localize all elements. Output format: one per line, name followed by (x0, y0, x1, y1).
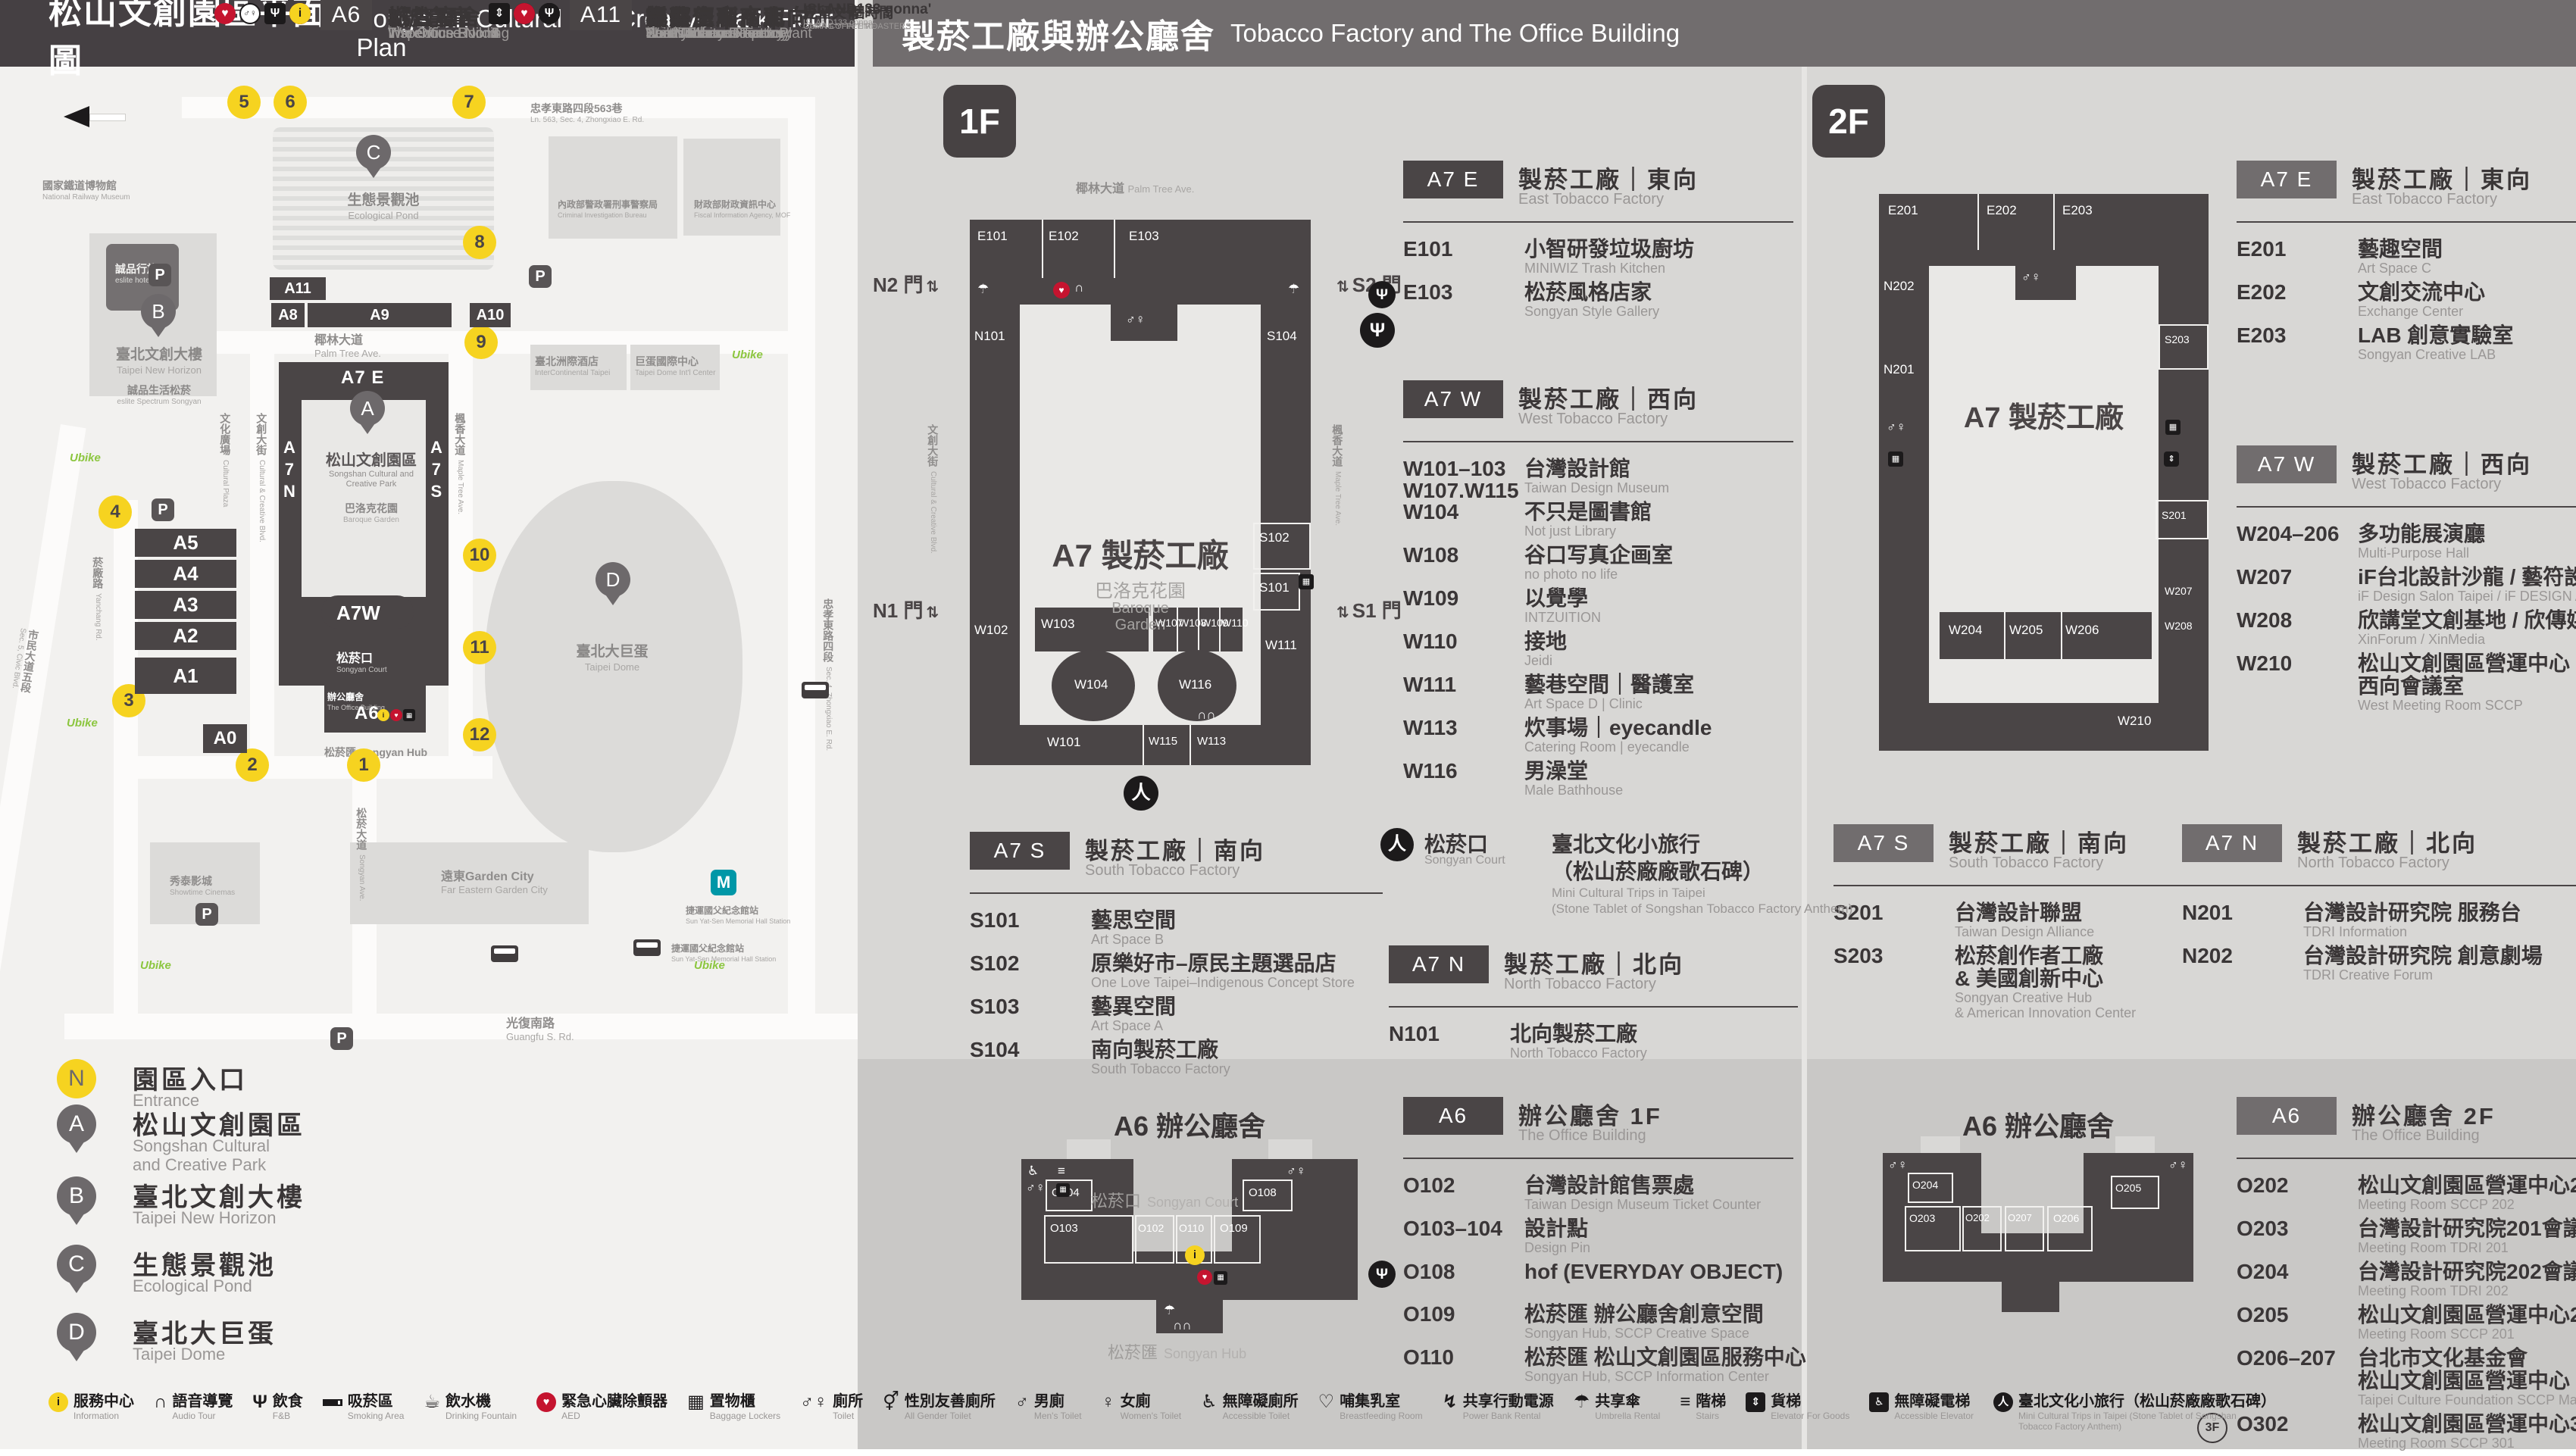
listing-row: N201台灣設計研究院 服務台TDRI Information (2182, 901, 2576, 939)
women-icon: ♀ (1102, 1392, 1115, 1412)
plan-icon: ▦ (1214, 1270, 1227, 1285)
aed-icon: ♥ (1053, 282, 1070, 298)
info-icon: i (1185, 1245, 1205, 1265)
locker-icon: ▦ (1056, 1183, 1070, 1197)
facility-text: 階梯Stairs (1696, 1392, 1726, 1421)
info-icon: i (48, 1392, 68, 1412)
section-title-zh: 製菸工廠｜西向 (1518, 380, 1699, 414)
map-label: 光復南路Guangfu S. Rd. (506, 1017, 574, 1043)
room-label-E103: E103 (1129, 229, 1159, 244)
smoking-icon (323, 1399, 342, 1406)
plan-glyph-icon: ♂♀ (1026, 1180, 1046, 1195)
room-label-W116: W116 (1179, 677, 1211, 692)
marker-icon-A: A (57, 1104, 96, 1144)
section-rows: N101北向製菸工廠North Tobacco Factory (1389, 1023, 1798, 1066)
fnb-icon: Ψ (1368, 1261, 1396, 1288)
room-name-zh: 松山文創園區營運中心西向會議室 (2358, 652, 2576, 698)
room-name-zh: 松菸創作者工廠& 美國創新中心 (1955, 945, 2212, 990)
entrance-number-marker: 1 (347, 748, 380, 782)
facility-access: ♿無障礙廁所Accessible Toilet (1201, 1392, 1299, 1421)
room-label-W115: W115 (1149, 735, 1177, 748)
listing-row: E202文創交流中心Exchange Center (2237, 281, 2576, 319)
room-name-zh: 台灣設計研究院201會議室 (2358, 1217, 2576, 1240)
right-title-zh: 製菸工廠與辦公廳舍 (902, 9, 1215, 58)
listing-row: S203松菸創作者工廠& 美國創新中心Songyan Creative Hub&… (1834, 945, 2212, 1020)
facility-text: 貨梯Elevator For Goods (1771, 1392, 1849, 1421)
p2-title: A7 製菸工廠 (1929, 394, 2159, 436)
room-name-en: Catering Room | eyecandle (1524, 739, 1793, 755)
entrance-number-marker: 9 (464, 326, 498, 359)
parking-icon: P (152, 498, 174, 521)
room-label-O202: O202 (1965, 1212, 1990, 1223)
facility-text: 無障礙電梯Accessible Elevator (1894, 1392, 1974, 1421)
marker-en: Taipei New Horizon (133, 1208, 277, 1227)
a6p1-court-label: 松菸口Songyan Court (1091, 1188, 1238, 1212)
facility-text: 性別友善廁所All Gender Toilet (905, 1392, 996, 1421)
room-label-W208: W208 (2165, 620, 2193, 632)
room-name-en: Multi-Purpose Hall (2358, 545, 2576, 561)
facility-text: 臺北文化小旅行（松山菸廠廠歌石碑）Mini Cultural Trips in … (2018, 1392, 2276, 1432)
listing-row: W111藝巷空間｜醫護室Art Space D | Clinic (1403, 673, 1793, 711)
room-name-en: Art Space C (2358, 261, 2576, 276)
listing-row: W110接地Jeidi (1403, 630, 1793, 668)
songyan-en: Songyan Court (1424, 854, 1505, 867)
room-name-zh: iF台北設計沙龍 / 藝符設計 (2358, 566, 2576, 589)
room-label-W103: W103 (1041, 617, 1074, 632)
info-icon: i (377, 709, 389, 721)
section-badge: A7 E (2237, 161, 2337, 198)
listing-row: W204–206多功能展演廳Multi-Purpose Hall (2237, 523, 2576, 561)
listing-row: W109以覺學INTZUITION (1403, 587, 1793, 625)
section-divider (1403, 1158, 1793, 1159)
p2-line (1977, 194, 1979, 250)
info-icon: i (289, 3, 311, 24)
room-label-W207: W207 (2165, 585, 2193, 597)
plan-icon: 人 (1124, 776, 1158, 811)
room-name-en: South Tobacco Factory (1091, 1061, 1383, 1076)
legend-badge: A6 (320, 0, 372, 30)
map-label: 松山文創園區Songshan Cultural andCreative Park (303, 451, 439, 489)
legend-marker-B: B臺北文創大樓Taipei New Horizon (57, 1176, 375, 1245)
section-title-zh: 製菸工廠｜南向 (1949, 824, 2129, 858)
room-name-zh: 接地 (1524, 630, 1793, 653)
drink-icon: ☕ (424, 1392, 440, 1412)
room-name-zh: 台灣設計研究院 創意劇場 (2303, 945, 2576, 967)
room-name-en: Art Space B (1091, 932, 1383, 947)
songyan-desc-zh2: （松山菸廠廠歌石碑） (1552, 855, 1764, 886)
listing-row: W210松山文創園區營運中心西向會議室West Meeting Room SCC… (2237, 652, 2576, 713)
room-name-zh: 松山文創園區營運中心301會議室 (2358, 1413, 2576, 1436)
building-bar-A9: A9 (308, 303, 452, 327)
room-code: W109 (1403, 587, 1524, 609)
map-label: A7W (336, 601, 380, 625)
section-divider (1389, 1006, 1798, 1008)
listing-row: S103藝異空間Art Space A (970, 995, 1383, 1033)
room-label-O203: O203 (1909, 1212, 1935, 1224)
section-divider (970, 892, 1383, 894)
room-name-en: iF Design Salon Taipei / iF DESIGN ASIA (2358, 589, 2576, 604)
section-title-en: South Tobacco Factory (1949, 855, 2103, 872)
room-name-en: Meeting Room TDRI 202 (2358, 1283, 2576, 1298)
room-code: O206–207 (2237, 1347, 2358, 1369)
room-code: W111 (1403, 673, 1524, 695)
trip-icon: 人 (1380, 828, 1414, 861)
room-code: W104 (1403, 501, 1524, 523)
plan-glyph-icon: ☂ (977, 282, 989, 297)
room-label-O204: O204 (1912, 1179, 1938, 1191)
location-pin-C: C (356, 135, 391, 170)
section-rows: S201台灣設計聯盟Taiwan Design AllianceS203松菸創作… (1834, 901, 2212, 1026)
room-name-en: Design Pin (1524, 1240, 1793, 1255)
room-code: O102 (1403, 1174, 1524, 1196)
marker-icon-B: B (57, 1176, 96, 1216)
location-pin-D: D (596, 562, 630, 597)
section-title-zh: 製菸工廠｜北向 (2297, 824, 2478, 858)
room-name-zh: 文創交流中心 (2358, 281, 2576, 304)
section-title-en: West Tobacco Factory (1518, 411, 1668, 428)
listing-row: W108谷口写真企画室no photo no life (1403, 544, 1793, 582)
room-name-zh: 台灣設計館售票處 (1524, 1174, 1793, 1197)
mrt-station-icon: M (711, 870, 736, 895)
room-name-zh: 藝思空間 (1091, 909, 1383, 932)
map-label: 財政部財政資訊中心Fiscal Information Agency, MOF (694, 197, 790, 220)
legend-row-icons: ♥♂♀Ψi (214, 3, 311, 24)
map-label: 文創大街Cultural & Creative Blvd. (255, 413, 269, 542)
facility-goods: ⇕貨梯Elevator For Goods (1746, 1392, 1849, 1421)
plan-icon: i (1185, 1245, 1205, 1265)
location-pin-B: B (141, 294, 176, 329)
audio-icon: ∩ (154, 1392, 167, 1412)
room-code: W207 (2237, 566, 2358, 588)
facility-locker: ▦置物櫃Baggage Lockers (687, 1392, 780, 1421)
legend-badge: A11 (570, 0, 632, 30)
listing-row: S101藝思空間Art Space B (970, 909, 1383, 947)
listing-row: O204台灣設計研究院202會議室Meeting Room TDRI 202 (2237, 1261, 2576, 1298)
section-title-en: North Tobacco Factory (1504, 976, 1656, 993)
plan-glyph-icon: ♂♀ (1887, 420, 1906, 435)
section-badge: A6 (1403, 1097, 1503, 1135)
entrance-number-marker: 5 (227, 86, 261, 119)
room-code: S103 (970, 995, 1091, 1017)
building-bar-A8: A8 (271, 303, 305, 327)
row-icon: Ψ (1368, 1261, 1396, 1288)
room-name-zh: 小智研發垃圾廚坊 (1524, 238, 1793, 261)
entrance-number-marker: 4 (98, 495, 132, 529)
room-label-W110: W110 (1221, 617, 1249, 629)
section-badge: A7 E (1403, 161, 1503, 198)
building-fia (683, 139, 780, 236)
room-code: O109 (1403, 1303, 1524, 1325)
listing-row: O102台灣設計館售票處Taiwan Design Museum Ticket … (1403, 1174, 1793, 1212)
legend-en: The Nursery Room (646, 26, 767, 42)
room-name-en: Art Space A (1091, 1018, 1383, 1033)
room-name-en: XinForum / XinMedia (2358, 632, 2576, 647)
marker-en: Songshan Culturaland Creative Park (133, 1136, 270, 1174)
locker-icon: ▦ (1214, 1271, 1227, 1285)
facility-text: 廁所Toilet (833, 1392, 863, 1421)
room-name-zh: 南向製菸工廠 (1091, 1039, 1383, 1061)
room-name-zh: 松菸風格店家 (1524, 281, 1793, 304)
ubike-station-label: Ubike (70, 451, 101, 464)
p1-line (1114, 220, 1115, 278)
facility-trip: 人臺北文化小旅行（松山菸廠廠歌石碑）Mini Cultural Trips in… (1993, 1392, 2276, 1432)
locker-icon: ▦ (1888, 451, 1903, 467)
plan-glyph-icon: ☂ (1164, 1303, 1175, 1318)
section-badge: A6 (2237, 1097, 2337, 1135)
entrance-number-marker: 11 (463, 631, 496, 664)
section-badge: A7 N (2182, 824, 2282, 862)
room-code: O108 (1403, 1261, 1524, 1283)
plan-icon: ▦ (1056, 1182, 1070, 1197)
room-code: O205 (2237, 1304, 2358, 1326)
legend-marker-C: C生態景觀池Ecological Pond (57, 1245, 375, 1313)
section-title-zh: 製菸工廠｜北向 (1504, 945, 1684, 980)
facility-text: 哺集乳室Breastfeeding Room (1340, 1392, 1422, 1421)
map-label: 菸廠路Yanchang Rd. (91, 557, 105, 641)
room-name-zh: 多功能展演廳 (2358, 523, 2576, 545)
listing-row: O202松山文創園區營運中心202會議室Meeting Room SCCP 20… (2237, 1174, 2576, 1212)
entrance-number-marker: 12 (463, 718, 496, 751)
plan-glyph-icon: ∩ (1074, 280, 1083, 295)
section-title-zh: 辦公廳舍 2F (2352, 1097, 2496, 1131)
aed-icon: ♥ (214, 3, 236, 24)
p2-line (2004, 612, 2005, 659)
p1-subtitle-zh: 巴洛克花園 (1020, 576, 1261, 602)
room-name-en: Not just Library (1524, 523, 1793, 539)
room-label-W205: W205 (2009, 623, 2043, 638)
map-label: 臺北文創大樓Taipei New Horizon (91, 347, 227, 376)
map-label: 臺北大巨蛋Taipei Dome (544, 644, 680, 673)
room-name-en: INTZUITION (1524, 610, 1793, 625)
listing-row: W207iF台北設計沙龍 / 藝符設計iF Design Salon Taipe… (2237, 566, 2576, 604)
facility-umb: ☂共享傘Umbrella Rental (1574, 1392, 1661, 1421)
section-title-en: West Tobacco Factory (2352, 476, 2501, 493)
room-code: W204–206 (2237, 523, 2358, 545)
section-divider (2237, 506, 2576, 508)
a6p2-south-stub (2002, 1282, 2059, 1312)
building-bar-A3: A3 (135, 591, 236, 619)
room-name-zh: 不只是圖書館 (1524, 501, 1793, 523)
bus-stop-icon (491, 945, 518, 962)
room-code: E203 (2237, 324, 2358, 346)
trip-icon: 人 (1993, 1392, 2013, 1412)
plan-glyph-icon: ♂♀ (2168, 1158, 2188, 1173)
wc-icon: ♂♀ (800, 1392, 827, 1412)
locker-icon: ▦ (2165, 420, 2181, 435)
room-code: S101 (970, 909, 1091, 931)
section-title-zh: 製菸工廠｜東向 (2352, 161, 2532, 195)
entrance-number-marker: 8 (463, 226, 496, 259)
room-name-en: Meeting Room SCCP 301 (2358, 1436, 2576, 1451)
room-code: S203 (1834, 945, 1955, 967)
listing-row: S102原樂好市–原民主題選品店One Love Taipei–Indigeno… (970, 952, 1383, 990)
legend-row-icons: Ψ (539, 3, 560, 24)
men-icon: ♂ (1015, 1392, 1029, 1412)
legend-brand: 光一 一個時間GUANG YI IN TIME (803, 2, 893, 31)
plan-icon: ▦ (1888, 451, 1903, 467)
room-label-W111: W111 (1265, 638, 1297, 653)
room-label-E201: E201 (1888, 203, 1918, 218)
room-label-W210: W210 (2118, 714, 2151, 729)
street-maple-ave: 楓香大道Maple Tree Ave. (1330, 424, 1345, 526)
listing-row: O103–104設計點Design Pin (1403, 1217, 1793, 1255)
room-code: O202 (2237, 1174, 2358, 1196)
map-label: 誠品生活松菸eslite Spectrum Songyan (91, 383, 227, 407)
room-code: O110 (1403, 1346, 1524, 1368)
room-name-zh: 藝巷空間｜醫護室 (1524, 673, 1793, 696)
plan-glyph-icon: ♂♀ (1888, 1158, 1908, 1173)
listing-row: O206–207台北市文化基金會松山文創園區營運中心Taipei Culture… (2237, 1347, 2576, 1408)
room-name-zh: 藝趣空間 (2358, 238, 2576, 261)
section-divider (1403, 441, 1793, 442)
facility-wc: ♂♀廁所Toilet (800, 1392, 863, 1421)
locker-icon: ▦ (1299, 574, 1314, 589)
plan-icon: ▦ (403, 708, 415, 721)
room-code: W208 (2237, 609, 2358, 631)
map-label: A7S (426, 438, 445, 504)
room-name-en: MINIWIZ Trash Kitchen (1524, 261, 1793, 276)
plan-icon: i (377, 708, 389, 721)
marker-en: Ecological Pond (133, 1276, 252, 1295)
room-name-zh: 男澡堂 (1524, 760, 1793, 783)
room-label-O207: O207 (2008, 1212, 2032, 1223)
facility-baby: ♡哺集乳室Breastfeeding Room (1318, 1392, 1423, 1421)
room-code: S102 (970, 952, 1091, 974)
marker-icon-N: N (57, 1059, 96, 1098)
room-name-en: TDRI Creative Forum (2303, 967, 2576, 983)
room-code: O203 (2237, 1217, 2358, 1239)
map-label: 臺北洲際酒店InterContinental Taipei (535, 355, 610, 378)
room-name-zh: 原樂好市–原民主題選品店 (1091, 952, 1383, 975)
elev-icon: ⇕ (2164, 451, 2179, 467)
gate-label: N2 門⇅ (873, 270, 942, 298)
floor-badge-1f: 1F (943, 85, 1016, 158)
room-label-E203: E203 (2062, 203, 2093, 218)
room-code: N101 (1389, 1023, 1510, 1045)
room-code: E101 (1403, 238, 1524, 260)
section-badge: A7 S (1834, 824, 1934, 862)
room-name-en: Art Space D | Clinic (1524, 696, 1793, 711)
section-divider (2182, 885, 2576, 886)
map-label: 忠孝東路四段Sec. 4, Zhongxiao E. Rd. (821, 598, 836, 751)
plan-icon: ♥ (1053, 282, 1070, 298)
locker-icon: ▦ (687, 1392, 705, 1412)
section-badge: A7 W (2237, 445, 2337, 483)
p1-line (1042, 220, 1043, 278)
aed-icon: ♥ (1197, 1270, 1212, 1285)
gate-label: ⇅S1 門 (1333, 595, 1402, 623)
facility-audio: ∩語音導覽Audio Tour (154, 1392, 233, 1421)
room-label-W204: W204 (1949, 623, 1982, 638)
listing-row: O203台灣設計研究院201會議室Meeting Room TDRI 201 (2237, 1217, 2576, 1255)
aed-icon: ♥ (536, 1392, 556, 1412)
section-title-zh: 製菸工廠｜南向 (1085, 832, 1265, 866)
section-rows: W204–206多功能展演廳Multi-Purpose HallW207iF台北… (2237, 523, 2576, 718)
p1-title: A7 製菸工廠 (1020, 530, 1261, 576)
room-name-zh: 台灣設計館 (1524, 458, 1793, 480)
room-label-O109: O109 (1220, 1222, 1248, 1235)
road (64, 1014, 858, 1039)
facility-icon-strip: i服務中心Information∩語音導覽Audio TourΨ飲食F&B吸菸區… (48, 1392, 2276, 1432)
building-bar-A4: A4 (135, 560, 236, 588)
road (250, 331, 274, 779)
p1-line (1190, 725, 1191, 765)
room-label-O108: O108 (1249, 1186, 1277, 1199)
facility-power: ↯共享行動電源Power Bank Rental (1443, 1392, 1554, 1421)
room-name-en: Songyan Hub, SCCP Information Center (1524, 1369, 1793, 1384)
listing-row: N202台灣設計研究院 創意劇場TDRI Creative Forum (2182, 945, 2576, 983)
room-label-W113: W113 (1197, 735, 1226, 748)
ubike-station-label: Ubike (67, 717, 98, 730)
map-label: 秀泰影城Showtime Cinemas (170, 874, 235, 898)
room-code: N202 (2182, 945, 2303, 967)
room-code: W116 (1403, 760, 1524, 782)
room-name-zh: 炊事場｜eyecandle (1524, 717, 1793, 739)
room-code: O103–104 (1403, 1217, 1524, 1239)
room-name-zh: 藝異空間 (1091, 995, 1383, 1018)
facility-text: 吸菸區Smoking Area (348, 1392, 405, 1421)
section-title-en: The Office Building (2352, 1127, 2480, 1145)
p1-bottom-band (970, 725, 1311, 765)
plan-glyph-icon: ∩∩ (1197, 708, 1216, 723)
elev-icon: ⇕ (1746, 1392, 1765, 1412)
room-name-zh: 欣講堂文創基地 / 欣傳媒 (2358, 609, 2576, 632)
plan-glyph-icon: ♂♀ (1286, 1164, 1306, 1179)
room-label-W102: W102 (974, 623, 1008, 638)
marker-icon-D: D (57, 1313, 96, 1352)
room-label-O103: O103 (1050, 1222, 1078, 1235)
right-title-en: Tobacco Factory and The Office Building (1230, 19, 1680, 48)
section-title-en: North Tobacco Factory (2297, 855, 2449, 872)
bus-stop-icon (633, 939, 661, 956)
elev-icon: ♿ (1869, 1392, 1889, 1412)
listing-row: E201藝趣空間Art Space C (2237, 238, 2576, 276)
entrance-number-marker: 7 (452, 86, 486, 119)
wc-icon: ♂♀ (239, 3, 261, 24)
facility-fnb: Ψ飲食F&B (252, 1392, 302, 1421)
listing-row: O108hof (EVERYDAY OBJECT)Ψ (1403, 1261, 1793, 1298)
section-rows: O202松山文創園區營運中心202會議室Meeting Room SCCP 20… (2237, 1174, 2576, 1456)
street-palm-tree-ave: 椰林大道 Palm Tree Ave. (1076, 182, 1194, 196)
plan-glyph-icon: ♂♀ (1126, 312, 1146, 327)
stairs-icon: ≡ (1680, 1392, 1690, 1412)
room-label-O102: O102 (1138, 1222, 1164, 1234)
parking-icon: P (330, 1027, 353, 1050)
room-name-zh: 台灣設計研究院202會議室 (2358, 1261, 2576, 1283)
plan-glyph-icon: ☂ (1288, 282, 1299, 297)
fnb-icon: Ψ (539, 3, 560, 24)
facility-text: 女廁Women's Toilet (1121, 1392, 1182, 1421)
room-name-zh: 台灣設計聯盟 (1955, 901, 2212, 924)
listing-row: W116男澡堂Male Bathhouse (1403, 760, 1793, 798)
aed-icon: ♥ (390, 709, 402, 721)
legend-en: The Office Building (388, 26, 509, 42)
facility-text: 置物櫃Baggage Lockers (710, 1392, 780, 1421)
listing-row: N101北向製菸工廠North Tobacco Factory (1389, 1023, 1798, 1061)
a6p1-hub-label: 松菸匯Songyan Hub (1108, 1339, 1246, 1364)
room-name-en: Jeidi (1524, 653, 1793, 668)
facility-accelev: ♿無障礙電梯Accessible Elevator (1869, 1392, 1974, 1421)
elev-icon: ⇕ (489, 3, 510, 24)
room-name-en: One Love Taipei–Indigenous Concept Store (1091, 975, 1383, 990)
map-label: 巴洛克花園Baroque Garden (303, 501, 439, 525)
building-bar-A0: A0 (203, 724, 247, 753)
room-name-zh: 谷口写真企画室 (1524, 544, 1793, 567)
ubike-station-label: Ubike (694, 959, 725, 972)
map-label: 松菸口Songyan Court (336, 651, 387, 675)
room-name-en: Taipei Culture Foundation SCCP Managemen… (2358, 1392, 2576, 1408)
room-label-S201: S201 (2162, 509, 2187, 521)
